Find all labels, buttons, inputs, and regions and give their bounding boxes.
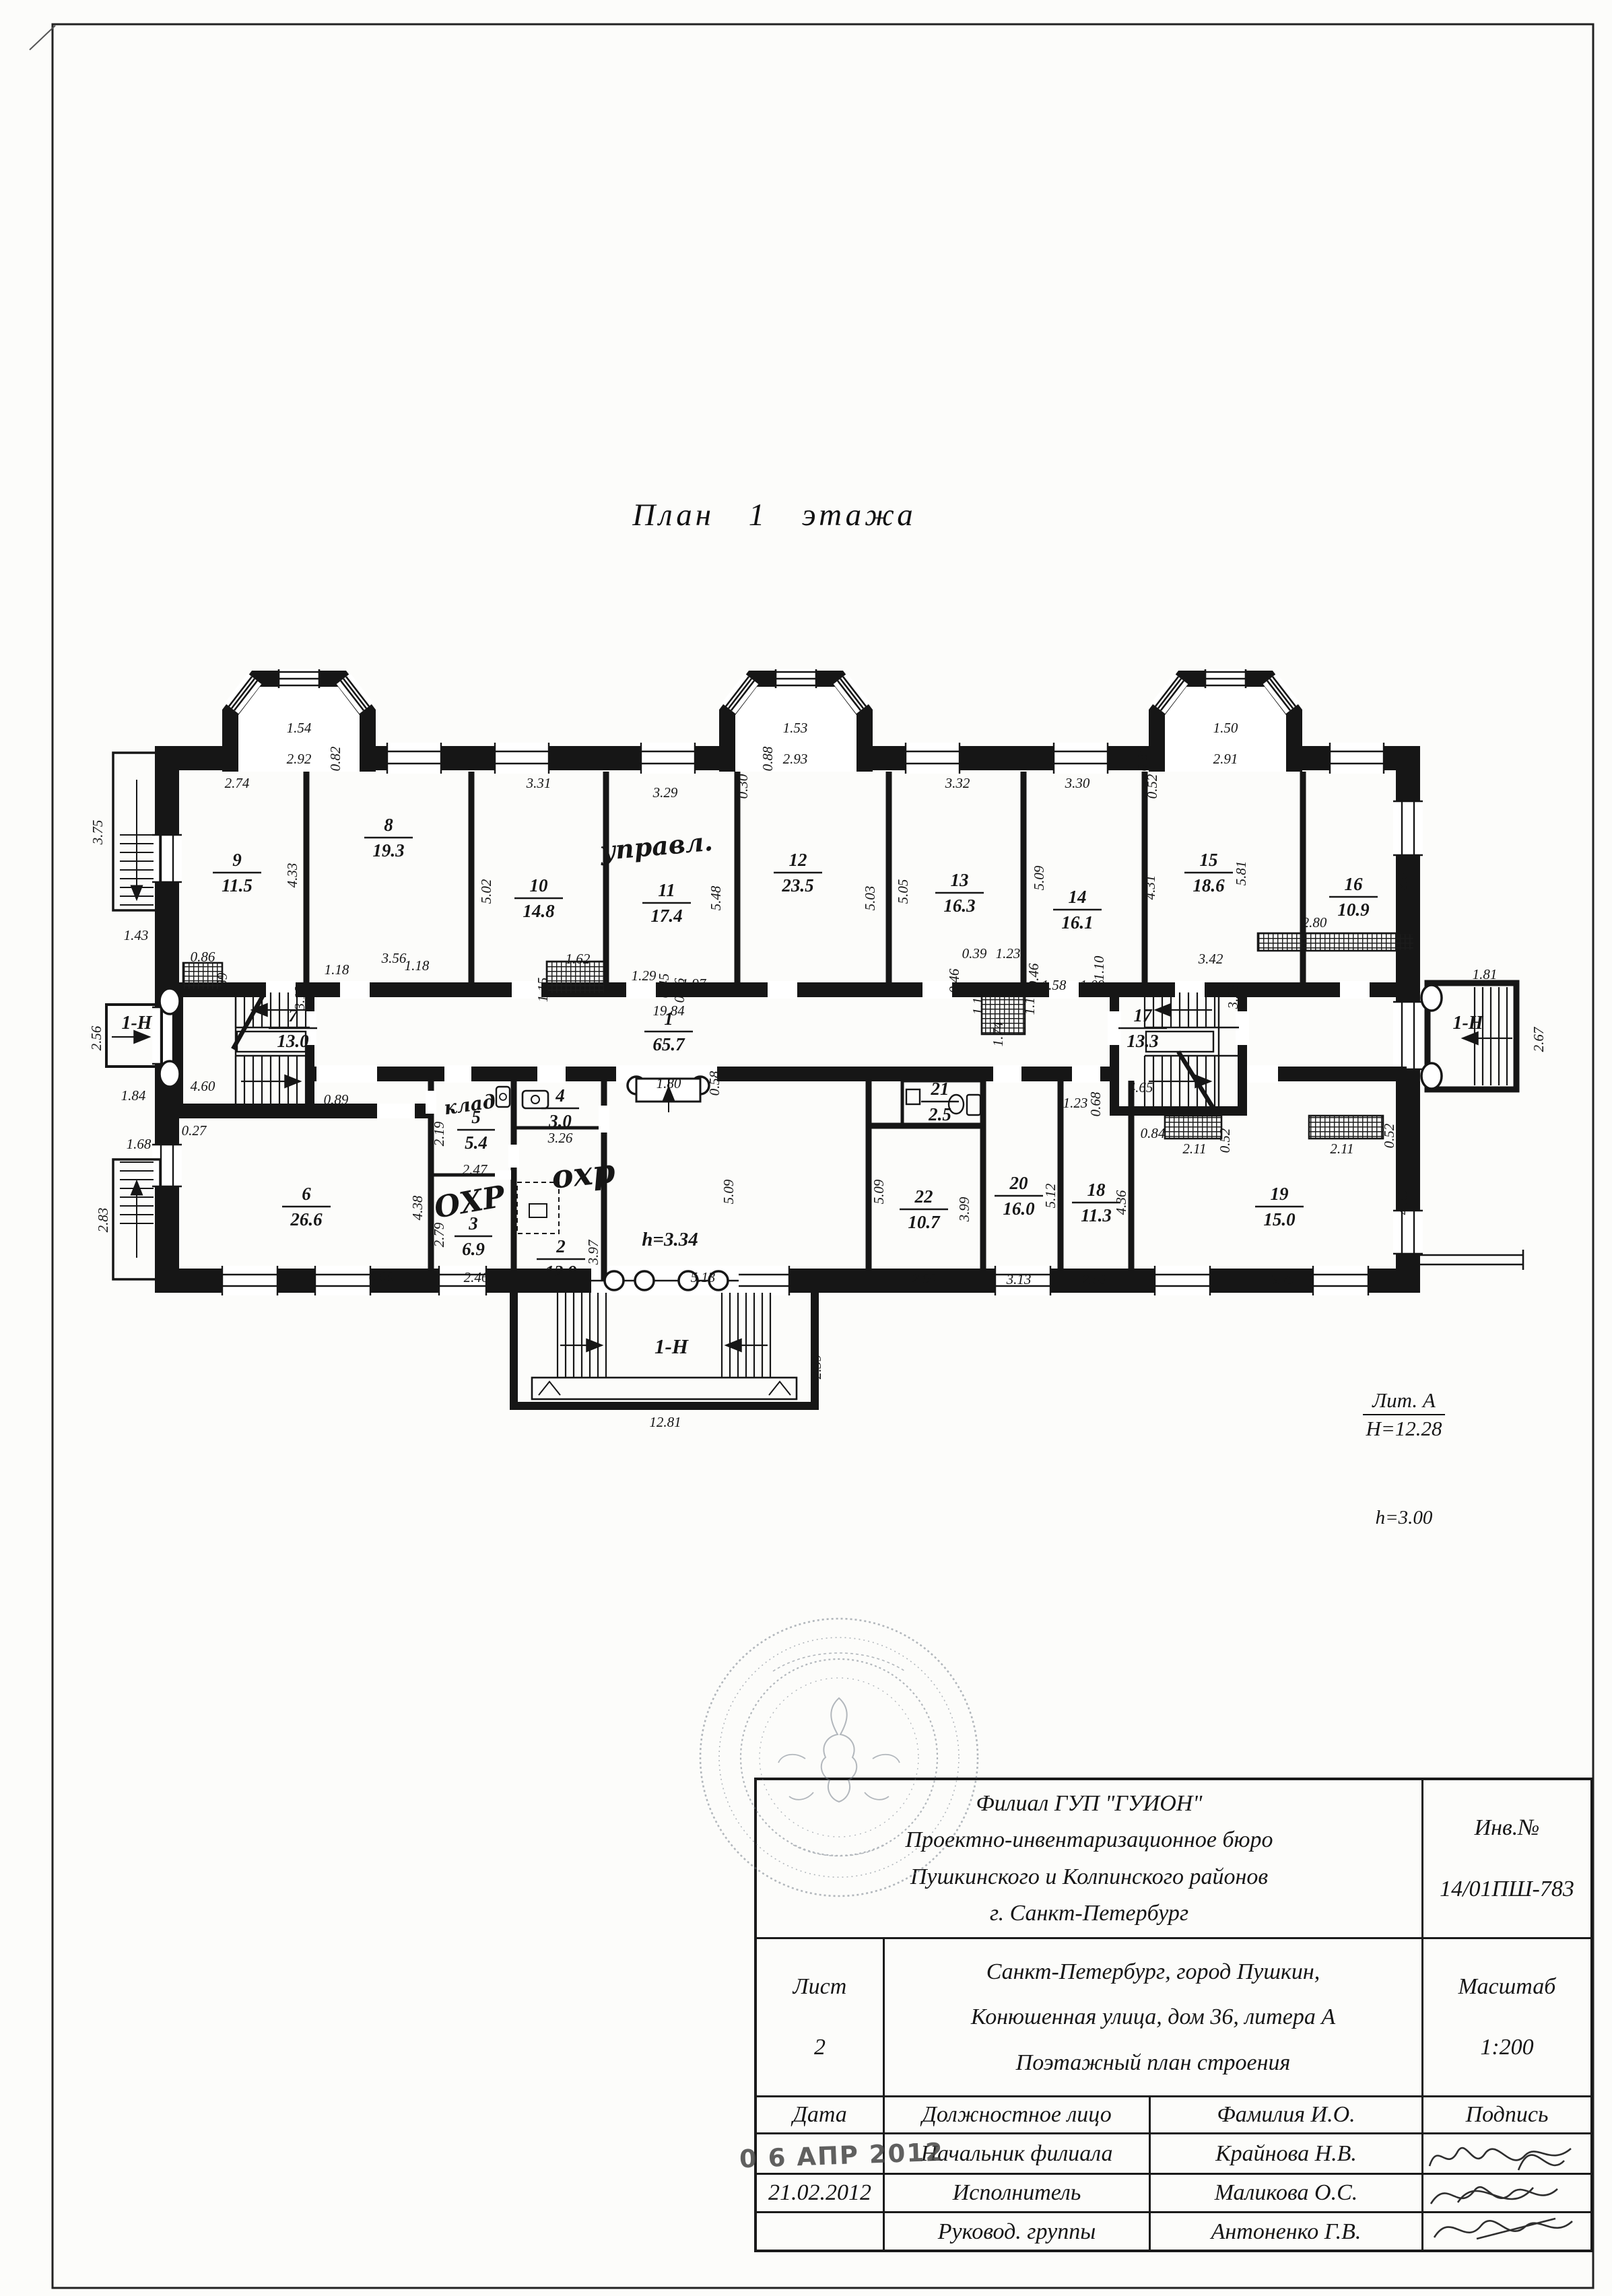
org-line: Филиал ГУП "ГУИОН" (976, 1791, 1202, 1817)
dimension-label: 6.08 (369, 1269, 394, 1285)
room-label: 911.5 (213, 850, 261, 896)
address-line: Поэтажный план строения (1016, 2050, 1291, 2076)
dimension-label: 1.18 (405, 957, 430, 974)
room-area: 19.3 (372, 840, 404, 860)
room-number: 9 (232, 850, 242, 870)
room-area: 23.5 (781, 875, 813, 896)
dimension-label: 2.92 (287, 751, 312, 767)
dimension-label: 3.97 (585, 1239, 601, 1265)
room-number: 20 (1009, 1173, 1029, 1193)
dimension-label: 1.54 (287, 720, 312, 736)
room-number: 21 (931, 1079, 949, 1099)
address-line: Санкт-Петербург, город Пушкин, (986, 1959, 1320, 1985)
titleblock-inventory: Инв.№ 14/01ПШ-783 (1423, 1780, 1590, 1939)
dimension-label: 2.19 (431, 1121, 447, 1146)
dimension-label: 1.74 (990, 1021, 1006, 1046)
dimension-label: 1.15 (535, 978, 551, 1003)
dimension-label: 5.09 (871, 1179, 887, 1204)
room-number: 15 (1200, 850, 1218, 870)
dimension-label: 2.93 (783, 751, 808, 767)
dimension-label: 5.13 (691, 1269, 716, 1285)
row-date: 21.02.2012 (757, 2175, 885, 2213)
inventory-number: 14/01ПШ-783 (1440, 1877, 1574, 1902)
room-number: 2 (556, 1236, 566, 1256)
dimension-label: 1.15 (1021, 990, 1038, 1015)
dimension-label: 3.23 (1225, 984, 1241, 1010)
titleblock-scale: Масштаб 1:200 (1423, 1939, 1590, 2097)
room-label: 2016.0 (995, 1173, 1043, 1219)
dimension-label: 0.46 (1026, 963, 1042, 988)
dimension-label: 1.16 (970, 990, 986, 1015)
dimension-label: 3.30 (1065, 775, 1090, 791)
dimension-label: 4.33 (284, 863, 300, 888)
room-number: 12 (789, 850, 807, 870)
page-title: План 1 этажа (532, 497, 1017, 533)
room-area: 5.4 (465, 1133, 488, 1153)
row-name: Маликова О.С. (1151, 2175, 1423, 2213)
dimension-label: 2.80 (1302, 914, 1327, 931)
room-number: 10 (530, 875, 549, 896)
dimension-label: 2.67 (1531, 1026, 1547, 1052)
litera-block: Лит. А H=12.28 (1330, 1388, 1478, 1441)
room-area: 10.7 (908, 1212, 941, 1232)
dimension-label: 0.68 (1087, 1091, 1104, 1116)
room-area: 16.1 (1061, 912, 1093, 933)
address-line: Конюшенная улица, дом 36, литера А (971, 2004, 1335, 2030)
dimension-label: 0.85 (1135, 747, 1151, 772)
room-label: 1223.5 (774, 850, 822, 896)
dimension-label: 1.53 (783, 720, 808, 736)
room-label: 1610.9 (1329, 874, 1378, 920)
plan-annotation: 1-Н (121, 1013, 152, 1034)
dimension-label: 1.18 (325, 961, 349, 978)
room-label: 2210.7 (900, 1186, 948, 1232)
sheet-label: Лист (793, 1974, 847, 2000)
dimension-label: 2.39 (808, 1354, 824, 1379)
building-height: H=12.28 (1330, 1417, 1478, 1441)
official-seal (692, 1611, 988, 1914)
dimension-label: 1.97 (681, 976, 707, 992)
dimension-label: 0.58 (706, 1071, 723, 1095)
room-number: 19 (1271, 1184, 1289, 1204)
room-number: 16 (1345, 874, 1364, 894)
room-area: 10.9 (1337, 900, 1370, 920)
dimension-label: 1.58 (1042, 977, 1067, 993)
sheet-number: 2 (814, 2035, 826, 2060)
dimension-label: 2.11 (1330, 1141, 1353, 1157)
dimension-label: 5.48 (708, 885, 724, 910)
room-number: 6 (302, 1184, 311, 1204)
dimension-label: 3.13 (1006, 1271, 1032, 1287)
dimension-label: 0.52 (1144, 774, 1160, 799)
room-labels: 165.7212.936.943.055.4626.6713.0819.3911… (213, 815, 1378, 1282)
room-label: 1416.1 (1053, 887, 1102, 933)
dimension-label: 0.89 (324, 1091, 349, 1108)
room-number: 18 (1087, 1180, 1106, 1200)
dimension-label: 0.27 (182, 1122, 207, 1139)
inventory-label: Инв.№ (1475, 1815, 1540, 1841)
handwritten-annotation: управл. (598, 826, 714, 867)
dimension-label: 1.43 (124, 927, 149, 943)
room-area: 16.0 (1003, 1198, 1035, 1219)
dimension-label: 4.30 (1395, 1190, 1411, 1215)
titleblock-sheet: Лист 2 (757, 1939, 885, 2097)
room-area: 3.0 (548, 1111, 572, 1131)
dimension-label: 0.52 (1381, 1123, 1397, 1148)
dimension-label: 2.56 (88, 1025, 104, 1050)
room-label: 212.5 (921, 1079, 959, 1124)
dimension-label: 2.11 (1182, 1141, 1206, 1157)
dimension-label: 2.74 (225, 775, 250, 791)
dimension-label: 1.50 (1213, 720, 1238, 736)
room-label: 1713.3 (1118, 1005, 1167, 1051)
room-area: 17.4 (650, 906, 682, 926)
row-official: Руковод. группы (885, 2213, 1151, 2250)
handwritten-annotation: ОХР (432, 1179, 509, 1225)
dimension-label: 5.09 (1031, 865, 1047, 890)
dimension-label: 3.19 (292, 985, 308, 1011)
dimension-label: 2.46 (464, 1269, 489, 1285)
dimension-label: 1.80 (657, 1075, 681, 1091)
row-name: Антоненко Г.В. (1151, 2213, 1423, 2250)
plan-annotation: h=3.34 (642, 1229, 698, 1250)
room-label: 1014.8 (514, 875, 563, 921)
titleblock-address: Санкт-Петербург, город Пушкин, Конюшенна… (885, 1939, 1423, 2097)
room-number: 14 (1069, 887, 1087, 907)
dimension-label: 1.23 (1063, 1095, 1088, 1111)
dimension-label: 2.68 (912, 1271, 937, 1287)
dimension-label: 5.05 (895, 879, 911, 904)
room-area: 65.7 (652, 1034, 685, 1054)
dimension-label: 4.38 (409, 1195, 426, 1220)
dimension-label: 2.83 (95, 1208, 111, 1233)
dimension-label: 12.81 (649, 1414, 681, 1430)
dimension-label: 0.46 (946, 968, 962, 993)
dimension-label: 0.39 (214, 972, 230, 997)
room-area: 15.0 (1263, 1209, 1296, 1229)
dimension-label: 3.29 (652, 784, 678, 801)
row-official: Исполнитель (885, 2175, 1151, 2213)
dimension-label: 0.84 (1141, 1125, 1166, 1141)
dimension-label: 0.39 (962, 945, 987, 961)
row-signature (1423, 2134, 1590, 2175)
scanned-floor-plan-page: 165.7212.936.943.055.4626.6713.0819.3911… (0, 0, 1612, 2296)
col-name: Фамилия И.О. (1151, 2097, 1423, 2134)
dimension-label: 2.91 (1213, 751, 1238, 767)
dimension-label: 2.79 (431, 1222, 447, 1247)
dimension-label: 4.60 (191, 1078, 215, 1094)
room-area: 13.3 (1127, 1031, 1158, 1051)
dimension-label: 4.65 (1129, 1079, 1153, 1095)
dimension-label: 3.31 (526, 775, 551, 791)
room-number: 13 (951, 870, 969, 890)
dimension-label: 1.10 (1091, 955, 1107, 980)
dimension-label: 4.36 (1113, 1190, 1129, 1215)
dimension-label: 3.99 (956, 1196, 972, 1222)
col-official: Должностное лицо (885, 2097, 1151, 2134)
dimension-label: 1.29 (632, 968, 657, 984)
plan-annotation: 1-Н (654, 1335, 689, 1358)
dimension-label: 3.75 (1270, 1271, 1296, 1287)
room-area: 13.0 (277, 1031, 309, 1051)
windows (152, 743, 1423, 1295)
dimension-label: 0.52 (1217, 1128, 1233, 1153)
room-area: 12.9 (545, 1262, 577, 1282)
row-name: Крайнова Н.В. (1151, 2134, 1423, 2175)
dimension-label: 5.09 (720, 1179, 737, 1204)
room-area: 11.5 (222, 875, 253, 896)
room-number: 22 (914, 1186, 933, 1207)
dimension-label: 0.88 (760, 746, 776, 771)
dimension-label: 5.02 (478, 879, 494, 904)
scale-label: Масштаб (1458, 1974, 1556, 2000)
room-area: 18.6 (1193, 875, 1225, 896)
room-area: 11.3 (1081, 1205, 1112, 1225)
room-area: 2.5 (928, 1104, 951, 1124)
dimension-label: 3.75 (90, 820, 106, 846)
room-area: 16.3 (943, 896, 975, 916)
interior-walls (168, 772, 1523, 1283)
dimension-label: 2.59 (1082, 1271, 1107, 1287)
dimension-label: 0.45 (656, 974, 672, 999)
room-area: 6.9 (462, 1239, 485, 1259)
dimension-label: 4.31 (1142, 875, 1158, 900)
dimension-label: 3.26 (547, 1130, 573, 1146)
room-area: 26.6 (290, 1209, 323, 1229)
room-label: 626.6 (282, 1184, 331, 1229)
col-date: Дата (757, 2097, 885, 2134)
dimension-label: 5.03 (862, 886, 878, 911)
dimension-label: 5.12 (1042, 1183, 1059, 1208)
row-signature (1423, 2213, 1590, 2250)
room-label: 1117.4 (642, 880, 691, 926)
room-number: 4 (555, 1085, 565, 1106)
dimension-label: 3.91 (1394, 866, 1410, 891)
dimension-label: 3.56 (381, 950, 407, 966)
room-area: 14.8 (523, 901, 555, 921)
handwritten-annotation: клад (442, 1090, 497, 1119)
dimension-label: 3.32 (945, 775, 970, 791)
row-date (757, 2213, 885, 2250)
dimension-label: 1.68 (127, 1136, 152, 1152)
dimension-label: 0.30 (735, 774, 751, 799)
dimension-label: 0.82 (327, 746, 343, 771)
dimension-label: 1.81 (1473, 966, 1498, 982)
room-number: 8 (384, 815, 393, 835)
room-label: 819.3 (364, 815, 413, 860)
dimension-label: 0.86 (191, 949, 215, 965)
plan-annotation: 1-Н (1452, 1013, 1483, 1034)
floor-height-note: h=3.00 (1330, 1507, 1478, 1529)
dimension-label: 1.84 (121, 1087, 146, 1104)
litera-label: Лит. А (1363, 1388, 1445, 1415)
dimension-label: 3.42 (1198, 951, 1223, 967)
col-signature: Подпись (1423, 2097, 1590, 2134)
room-label: 1518.6 (1184, 850, 1233, 896)
dimension-label: 2.47 (463, 1161, 488, 1178)
room-label: 1316.3 (935, 870, 984, 916)
room-number: 17 (1134, 1005, 1153, 1025)
dimension-label: 19.84 (652, 1003, 685, 1019)
dimension-label: 1.23 (996, 945, 1021, 961)
org-line: г. Санкт-Петербург (990, 1901, 1188, 1926)
row-signature (1423, 2175, 1590, 2213)
handwritten-annotation: охр (550, 1152, 617, 1196)
dimension-label: 1.62 (566, 951, 591, 967)
room-number: 11 (658, 880, 675, 900)
scale-value: 1:200 (1480, 2035, 1533, 2060)
room-label: 1915.0 (1255, 1184, 1304, 1229)
dimension-label: 5.81 (1233, 861, 1249, 886)
